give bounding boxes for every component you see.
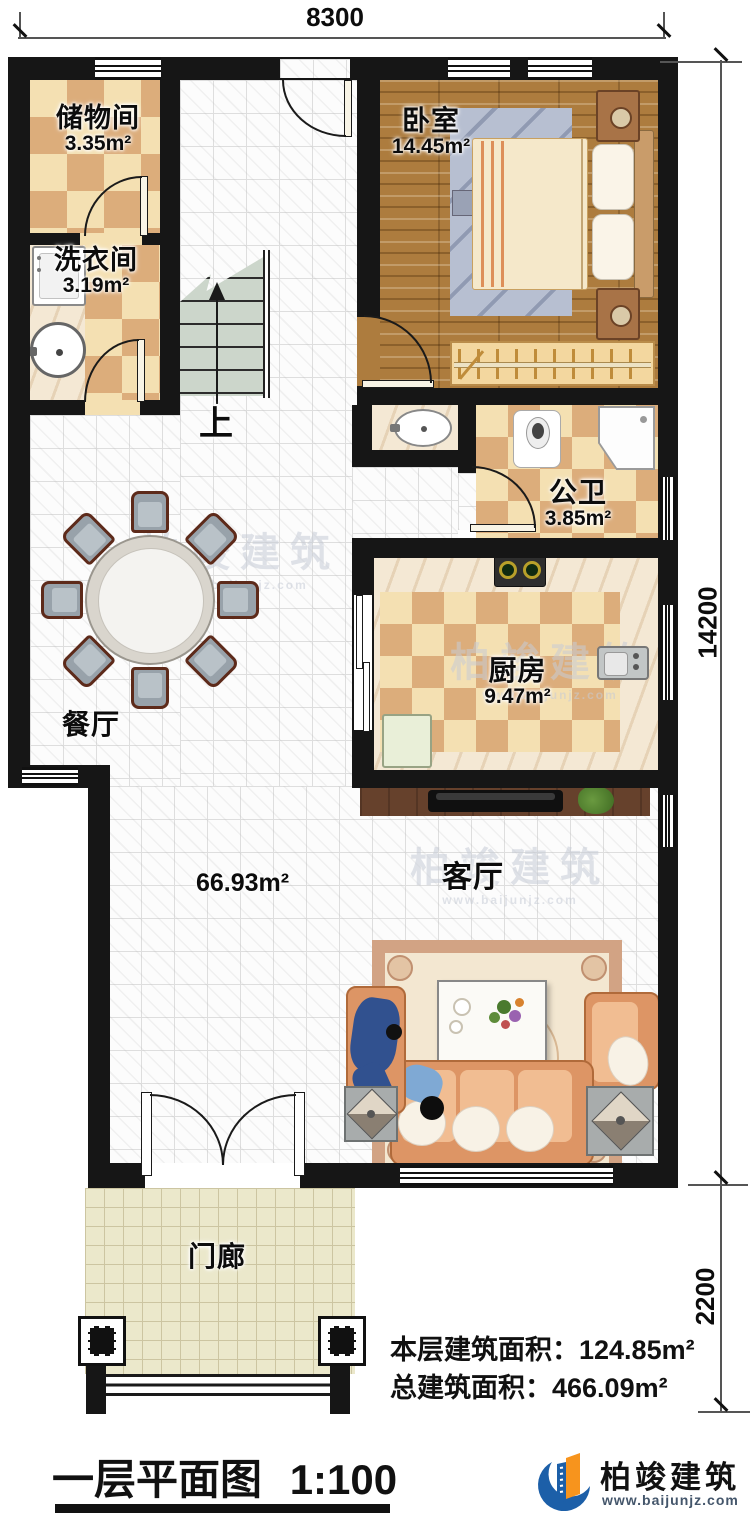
- nightstand: [596, 288, 640, 340]
- pillow: [592, 214, 634, 280]
- pillow: [592, 144, 634, 210]
- room-label-storage: 储物间 3.35m²: [42, 104, 154, 155]
- room-label-living: 客厅: [425, 862, 521, 894]
- wall-niche-bottom: [352, 450, 470, 467]
- wardrobe: [450, 341, 655, 386]
- dim-side-main: 14200: [693, 563, 724, 683]
- porch-stub-left: [86, 1366, 106, 1414]
- floor-area-line: 本层建筑面积：124.85m²: [390, 1328, 695, 1367]
- lamp-table: [586, 1086, 654, 1156]
- stair-rail: [263, 250, 270, 398]
- stairs-up-label: 上: [190, 406, 242, 442]
- wall-bedroom-bottom: [357, 388, 678, 405]
- kitchen-window: [660, 605, 676, 700]
- dim-top-line: [18, 37, 666, 39]
- kitchen-sink: [597, 646, 649, 680]
- hall-door-opening: [280, 59, 350, 78]
- floor-plan: 柏竣建筑 www.baijunjz.com 柏竣建筑 www.baijunjz.…: [0, 0, 750, 1530]
- laundry-door-opening: [85, 400, 140, 415]
- room-label-laundry: 洗衣间 3.19m²: [40, 246, 152, 297]
- floor-area-value: 124.85m²: [579, 1335, 695, 1365]
- floor-area-label: 本层建筑面积：: [390, 1335, 579, 1365]
- squat-toilet: [513, 410, 561, 468]
- total-area-line: 总建筑面积：466.09m²: [390, 1366, 668, 1405]
- fridge: [382, 714, 432, 768]
- room-label-kitchen: 厨房 9.47m²: [455, 656, 580, 708]
- lamp-table: [344, 1086, 398, 1142]
- hall-area-label: 66.93m²: [180, 870, 305, 897]
- drawing-scale: 1:100: [290, 1456, 397, 1503]
- armchair: [584, 992, 660, 1090]
- page-title: 一层平面图: [52, 1456, 262, 1503]
- wall-left-upper: [8, 57, 30, 788]
- dim-stub: [698, 1411, 750, 1413]
- tv: [428, 790, 563, 812]
- room-label-dining: 餐厅: [48, 710, 134, 740]
- dining-chair: [41, 581, 83, 619]
- wall-kitchen-bottom: [352, 770, 678, 788]
- dining-chair: [131, 667, 169, 709]
- stair-arrow-line: [216, 298, 218, 404]
- coffee-table: [437, 980, 547, 1062]
- porch-column: [318, 1316, 366, 1366]
- dim-side-porch: 2200: [690, 1239, 721, 1354]
- person-head: [420, 1096, 444, 1120]
- sofa: [390, 1060, 594, 1166]
- bedroom-window-2: [528, 57, 592, 80]
- room-label-porch: 门廊: [172, 1242, 262, 1272]
- bedroom-window-1: [448, 57, 510, 80]
- laundry-basin: [30, 322, 86, 378]
- tv-cabinet: [360, 788, 650, 816]
- porch-steps: [104, 1374, 332, 1402]
- bed-mattress: [472, 138, 588, 290]
- plant-icon: [578, 786, 614, 814]
- brand-name: 柏竣建筑: [600, 1452, 740, 1497]
- living-window: [400, 1165, 613, 1186]
- brand-url: www.baijunjz.com: [602, 1492, 739, 1508]
- stair-arrow-head: [209, 282, 225, 300]
- entry-opening: [145, 1163, 300, 1188]
- wall-bath-left: [458, 405, 476, 473]
- brand-logo: 柏竣建筑 www.baijunjz.com: [530, 1446, 750, 1522]
- bathroom-window: [660, 477, 676, 540]
- kitchen-slider-panel: [356, 595, 363, 669]
- bath-hall-strip-floor: [352, 467, 458, 538]
- porch-stub-right: [330, 1366, 350, 1414]
- dim-stub: [660, 61, 742, 63]
- wash-basin: [394, 409, 452, 447]
- total-area-label: 总建筑面积：: [390, 1373, 552, 1403]
- room-label-bedroom: 卧室 14.45m²: [376, 106, 486, 158]
- total-area-value: 466.09m²: [552, 1373, 668, 1403]
- stove: [494, 553, 546, 587]
- dim-right-line: [720, 60, 722, 1412]
- brand-logo-icon: [530, 1450, 594, 1514]
- wall-kitchen-top: [352, 538, 678, 558]
- headboard: [634, 130, 654, 298]
- porch-column: [78, 1316, 126, 1366]
- storage-window: [95, 57, 161, 80]
- kitchen-slider-panel: [363, 662, 370, 732]
- dim-stub: [688, 1184, 748, 1186]
- dim-top-value: 8300: [280, 2, 390, 33]
- dining-chair: [131, 491, 169, 533]
- nightstand: [596, 90, 640, 142]
- dining-side-window: [22, 767, 78, 786]
- person-head: [386, 1024, 402, 1040]
- title-block: 一层平面图 1:100: [52, 1446, 397, 1507]
- room-label-bathroom: 公卫 3.85m²: [518, 478, 638, 530]
- living-side-window: [660, 795, 676, 847]
- dining-table: [85, 535, 215, 665]
- wall-left-lower: [88, 786, 110, 1188]
- title-underline: [55, 1504, 390, 1513]
- dining-chair: [217, 581, 259, 619]
